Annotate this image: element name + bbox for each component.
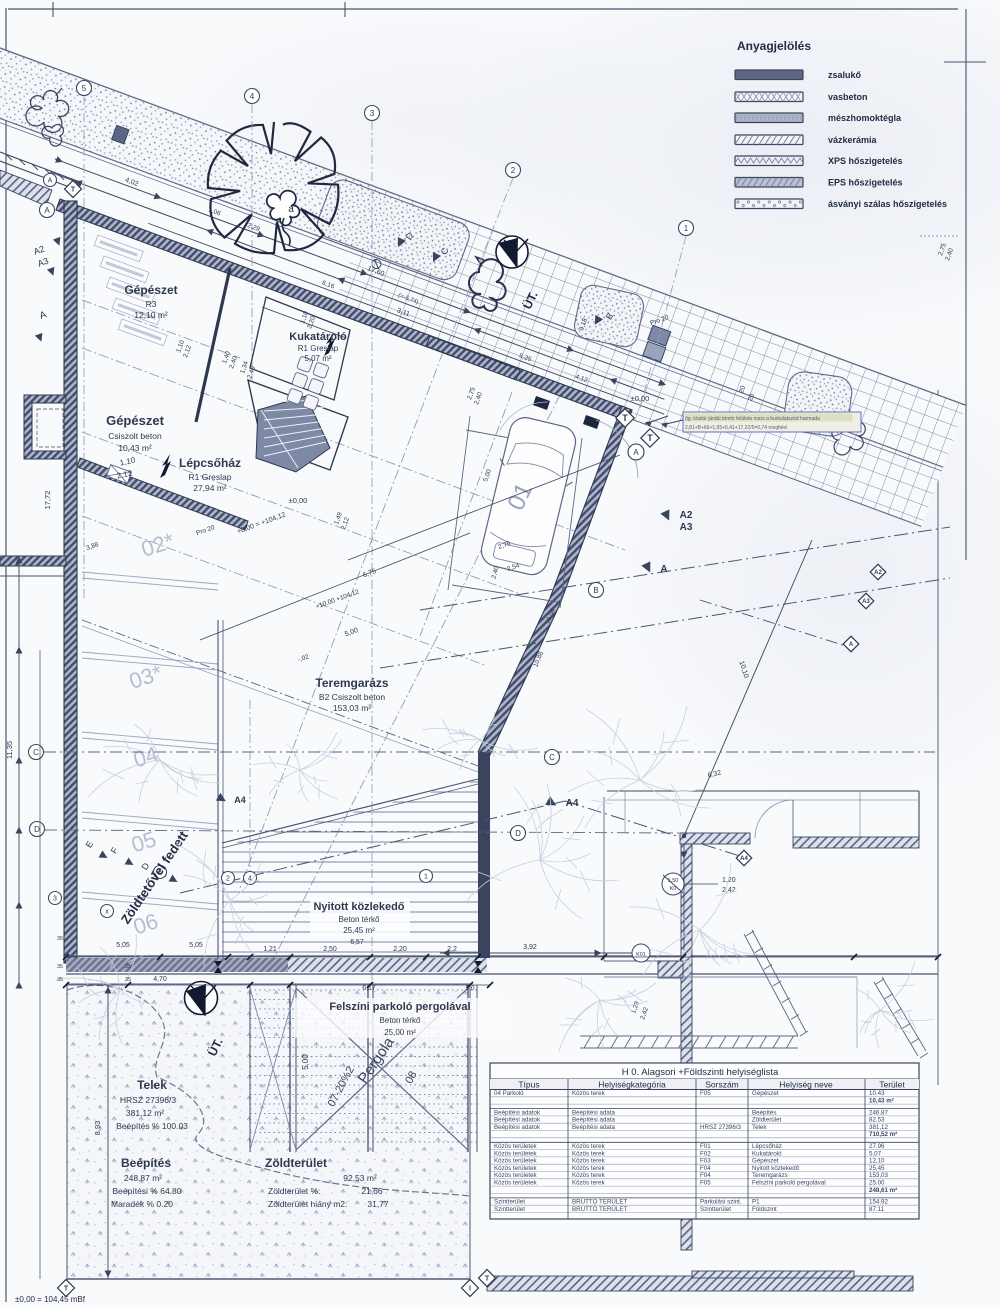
svg-text:B2 Csiszolt beton: B2 Csiszolt beton: [319, 692, 385, 702]
svg-text:Telek: Telek: [752, 1124, 767, 1131]
svg-text:Zöldterület hiány m2:: Zöldterület hiány m2:: [268, 1199, 347, 1209]
svg-text:D: D: [34, 825, 40, 834]
svg-text:10,43 m²: 10,43 m²: [869, 1098, 894, 1105]
svg-text:x: x: [105, 909, 109, 916]
svg-text:BRUTTÓ TERÜLET: BRUTTÓ TERÜLET: [572, 1206, 627, 1213]
svg-text:a: a: [288, 204, 294, 215]
svg-text:Szintterület: Szintterület: [494, 1199, 525, 1206]
svg-text:A4: A4: [740, 856, 748, 862]
svg-text:92,53 m²: 92,53 m²: [343, 1173, 377, 1183]
svg-text:5,07: 5,07: [869, 1150, 882, 1157]
svg-text:12,10: 12,10: [869, 1158, 885, 1165]
svg-text:A: A: [849, 642, 854, 648]
svg-text:C: C: [549, 753, 555, 762]
svg-text:F03: F03: [700, 1158, 711, 1165]
svg-text:vázkerámia: vázkerámia: [828, 135, 878, 145]
svg-text:5,00: 5,00: [301, 1054, 310, 1070]
svg-text:Beépítés: Beépítés: [752, 1109, 776, 1116]
svg-text:F01: F01: [700, 1143, 711, 1150]
svg-text:Közös területek: Közös területek: [494, 1143, 538, 1150]
svg-text:Beépítés: Beépítés: [121, 1156, 171, 1170]
svg-text:35: 35: [57, 964, 63, 970]
svg-text:82.53: 82.53: [869, 1117, 885, 1124]
svg-text:Terület: Terület: [879, 1080, 905, 1090]
svg-text:XPS hőszigetelés: XPS hőszigetelés: [828, 156, 903, 166]
svg-text:153,03: 153,03: [869, 1172, 888, 1179]
svg-text:17,72: 17,72: [43, 491, 52, 510]
svg-text:Beépítési adatok: Beépítési adatok: [494, 1124, 541, 1131]
svg-text:5,07 m²: 5,07 m²: [304, 354, 331, 363]
svg-text:Közös terek: Közös terek: [572, 1180, 606, 1187]
svg-text:5,0: 5,0: [465, 985, 474, 992]
svg-text:6,17: 6,17: [362, 985, 376, 992]
svg-text:±0,00 = 104,45 mBf: ±0,00 = 104,45 mBf: [15, 1295, 86, 1304]
svg-text:Közös terek: Közös terek: [572, 1090, 606, 1097]
svg-text:P1: P1: [752, 1199, 760, 1206]
svg-text:Közös területek: Közös területek: [494, 1180, 538, 1187]
svg-text:2: 2: [511, 166, 516, 175]
svg-text:Beépítési adata: Beépítési adata: [572, 1109, 616, 1116]
svg-text:HRSZ 27396/3: HRSZ 27396/3: [120, 1095, 176, 1105]
svg-text:Beépítési adata: Beépítési adata: [572, 1117, 616, 1124]
svg-text:2,81+B+66+1,95+6,41+17,22/5=0,: 2,81+B+66+1,95+6,41+17,22/5=0,74 megfele…: [685, 425, 787, 431]
svg-text:B: B: [593, 586, 598, 595]
svg-text:35: 35: [125, 977, 131, 983]
svg-text:A: A: [48, 178, 53, 185]
svg-text:4: 4: [250, 92, 255, 101]
svg-text:±0,00: ±0,00: [289, 496, 308, 505]
svg-text:4,70: 4,70: [153, 976, 167, 983]
svg-text:EPS hőszigetelés: EPS hőszigetelés: [828, 178, 903, 188]
svg-text:A3: A3: [862, 599, 870, 605]
svg-text:Közös területek: Közös területek: [494, 1150, 538, 1157]
svg-text:H 0. Alagsori +Földszinti hely: H 0. Alagsori +Földszinti helyiséglista: [622, 1067, 779, 1078]
svg-text:F05: F05: [700, 1180, 711, 1187]
svg-text:2: 2: [226, 876, 230, 883]
svg-text:2,50: 2,50: [323, 946, 337, 953]
svg-text:F02: F02: [700, 1150, 711, 1157]
svg-text:R1 Greslap: R1 Greslap: [189, 472, 232, 482]
svg-text:±0,00: ±0,00: [631, 394, 650, 403]
svg-text:35: 35: [57, 936, 63, 942]
svg-text:T: T: [71, 187, 76, 194]
svg-text:Beépítés % 100.03: Beépítés % 100.03: [116, 1121, 188, 1131]
svg-text:A2: A2: [874, 570, 882, 576]
svg-text:I: I: [469, 1286, 471, 1293]
svg-text:25.00: 25.00: [869, 1180, 885, 1187]
svg-text:HRSZ 27396/3: HRSZ 27396/3: [700, 1124, 741, 1131]
svg-text:A: A: [633, 448, 639, 457]
svg-text:31,77: 31,77: [367, 1199, 389, 1209]
svg-text:Kukatároló: Kukatároló: [752, 1150, 782, 1157]
svg-text:248.87 m²: 248.87 m²: [124, 1173, 162, 1183]
svg-text:mészhomoktégla: mészhomoktégla: [828, 113, 902, 123]
svg-text:Közös területek: Közös területek: [494, 1158, 538, 1165]
svg-text:Szintterület: Szintterület: [700, 1206, 731, 1213]
svg-text:4: 4: [248, 876, 252, 883]
svg-text:D: D: [515, 829, 521, 838]
svg-text:5: 5: [82, 84, 87, 93]
svg-text:25,00 m²: 25,00 m²: [384, 1028, 416, 1037]
svg-text:248,61 m²: 248,61 m²: [869, 1187, 897, 1194]
svg-text:3: 3: [53, 896, 57, 903]
svg-text:Lépcsőház: Lépcsőház: [752, 1143, 782, 1150]
svg-text:Szintterület: Szintterület: [494, 1206, 525, 1213]
svg-text:A: A: [44, 206, 50, 215]
svg-text:Közös terek: Közös terek: [572, 1143, 606, 1150]
svg-text:2,20: 2,20: [393, 946, 407, 953]
svg-text:Beépítési adatok: Beépítési adatok: [494, 1117, 541, 1124]
svg-text:1: 1: [684, 224, 689, 233]
svg-text:153,03 m²: 153,03 m²: [333, 703, 371, 713]
svg-text:1: 1: [424, 874, 428, 881]
svg-text:246.87: 246.87: [869, 1109, 888, 1116]
svg-text:Földszint: Földszint: [752, 1206, 777, 1213]
svg-text:5,05: 5,05: [189, 942, 203, 949]
svg-text:K0: K0: [670, 886, 677, 892]
svg-text:Lépcsőház: Lépcsőház: [179, 456, 241, 470]
svg-text:Beton térkő: Beton térkő: [339, 915, 380, 924]
svg-text:381,12: 381,12: [869, 1124, 888, 1131]
svg-text:Telek: Telek: [137, 1078, 167, 1092]
svg-text:C: C: [33, 748, 39, 757]
svg-text:Közös terek: Közös terek: [572, 1172, 606, 1179]
svg-text:Közös terek: Közös terek: [572, 1158, 606, 1165]
svg-text:A4: A4: [566, 798, 579, 809]
svg-text:2,2: 2,2: [447, 946, 457, 953]
svg-text:27,94 m²: 27,94 m²: [193, 483, 227, 493]
svg-text:A3: A3: [680, 522, 693, 533]
svg-text:8,93: 8,93: [93, 1121, 102, 1136]
svg-text:Típus: Típus: [518, 1080, 539, 1090]
svg-text:F05: F05: [700, 1090, 711, 1097]
svg-text:6,57: 6,57: [350, 939, 364, 946]
svg-text:Felszíni parkoló pergolával: Felszíni parkoló pergolával: [752, 1180, 826, 1187]
svg-text:Csiszolt beton: Csiszolt beton: [108, 431, 162, 441]
svg-text:154.92: 154.92: [869, 1199, 888, 1206]
svg-text:Helyiség neve: Helyiség neve: [779, 1080, 833, 1090]
svg-text:ásványi szálas hőszigetelés: ásványi szálas hőszigetelés: [828, 199, 947, 209]
svg-text:Anyagjelölés: Anyagjelölés: [737, 39, 811, 53]
svg-text:21,66: 21,66: [361, 1186, 383, 1196]
svg-text:10.43: 10.43: [869, 1090, 885, 1097]
svg-text:Felszíni parkoló pergolával: Felszíni parkoló pergolával: [329, 1001, 470, 1013]
svg-text:04 Parkoló: 04 Parkoló: [494, 1090, 524, 1097]
svg-text:Gépészet: Gépészet: [752, 1158, 779, 1165]
svg-text:381,12 m²: 381,12 m²: [126, 1108, 164, 1118]
svg-text:Közös terek: Közös terek: [572, 1165, 606, 1172]
svg-text:T: T: [622, 413, 628, 423]
svg-text:1,21: 1,21: [263, 946, 277, 953]
svg-text:Parkolási szint.: Parkolási szint.: [700, 1199, 742, 1206]
svg-text:11,35: 11,35: [5, 741, 14, 759]
svg-text:Kukatároló: Kukatároló: [289, 331, 347, 343]
svg-text:Helyiségkategória: Helyiségkategória: [598, 1080, 666, 1090]
svg-text:10,43 m²: 10,43 m²: [118, 443, 152, 453]
svg-text:T: T: [647, 433, 653, 443]
svg-text:Zöldterület: Zöldterület: [265, 1156, 327, 1170]
svg-text:25,45 m²: 25,45 m²: [343, 926, 375, 935]
svg-text:Zöldterület %:: Zöldterület %:: [268, 1186, 320, 1196]
svg-text:A4: A4: [234, 795, 246, 805]
svg-text:710,52 m²: 710,52 m²: [869, 1131, 897, 1138]
svg-text:Nyitott közlekedő: Nyitott közlekedő: [752, 1165, 800, 1172]
svg-text:R3: R3: [146, 299, 157, 309]
svg-text:Gépészet: Gépészet: [124, 283, 177, 297]
svg-text:Sorszám: Sorszám: [705, 1080, 739, 1090]
svg-text:Beépítési % 64.80: Beépítési % 64.80: [113, 1186, 182, 1196]
svg-text:R1 Greslap: R1 Greslap: [298, 344, 339, 353]
svg-text:Teremgarázs: Teremgarázs: [752, 1172, 788, 1179]
svg-text:vasbeton: vasbeton: [828, 92, 868, 102]
svg-text:T: T: [485, 1276, 490, 1283]
svg-text:25,45: 25,45: [869, 1165, 885, 1172]
svg-text:5,05: 5,05: [116, 942, 130, 949]
svg-text:3: 3: [370, 109, 375, 118]
svg-text:Beépítési adata: Beépítési adata: [572, 1124, 616, 1131]
svg-text:F04: F04: [700, 1165, 711, 1172]
svg-text:Közös területek: Közös területek: [494, 1165, 538, 1172]
svg-text:T: T: [64, 1286, 69, 1293]
svg-text:Gépészet: Gépészet: [752, 1090, 779, 1097]
svg-text:Maradék % 0.20: Maradék % 0.20: [111, 1199, 173, 1209]
svg-text:12,10 m²: 12,10 m²: [134, 310, 168, 320]
svg-text:27.96: 27.96: [869, 1143, 885, 1150]
svg-text:Gépészet: Gépészet: [106, 413, 164, 428]
svg-text:zsalukő: zsalukő: [828, 70, 862, 80]
svg-text:35: 35: [57, 977, 63, 983]
svg-text:Beton térkő: Beton térkő: [380, 1016, 421, 1025]
svg-text:87.11: 87.11: [869, 1206, 885, 1213]
svg-text:BRUTTÓ TERÜLET: BRUTTÓ TERÜLET: [572, 1199, 627, 1206]
svg-text:35: 35: [125, 964, 131, 970]
svg-text:Beépítési adatok: Beépítési adatok: [494, 1109, 541, 1116]
svg-text:A: A: [660, 564, 667, 575]
svg-text:Közös területek: Közös területek: [494, 1172, 538, 1179]
svg-text:Teremgarázs: Teremgarázs: [315, 676, 388, 690]
svg-text:Nyitott közlekedő: Nyitott közlekedő: [313, 901, 404, 913]
svg-text:Közös terek: Közös terek: [572, 1150, 606, 1157]
svg-text:(ig. köztür járdái tömör felül: (ig. köztür járdái tömör felülete mars a…: [685, 416, 820, 422]
svg-text:A2: A2: [680, 510, 693, 521]
svg-text:Zöldterület: Zöldterület: [752, 1117, 782, 1124]
svg-text:3,92: 3,92: [523, 944, 537, 951]
svg-text:F04: F04: [700, 1172, 711, 1179]
